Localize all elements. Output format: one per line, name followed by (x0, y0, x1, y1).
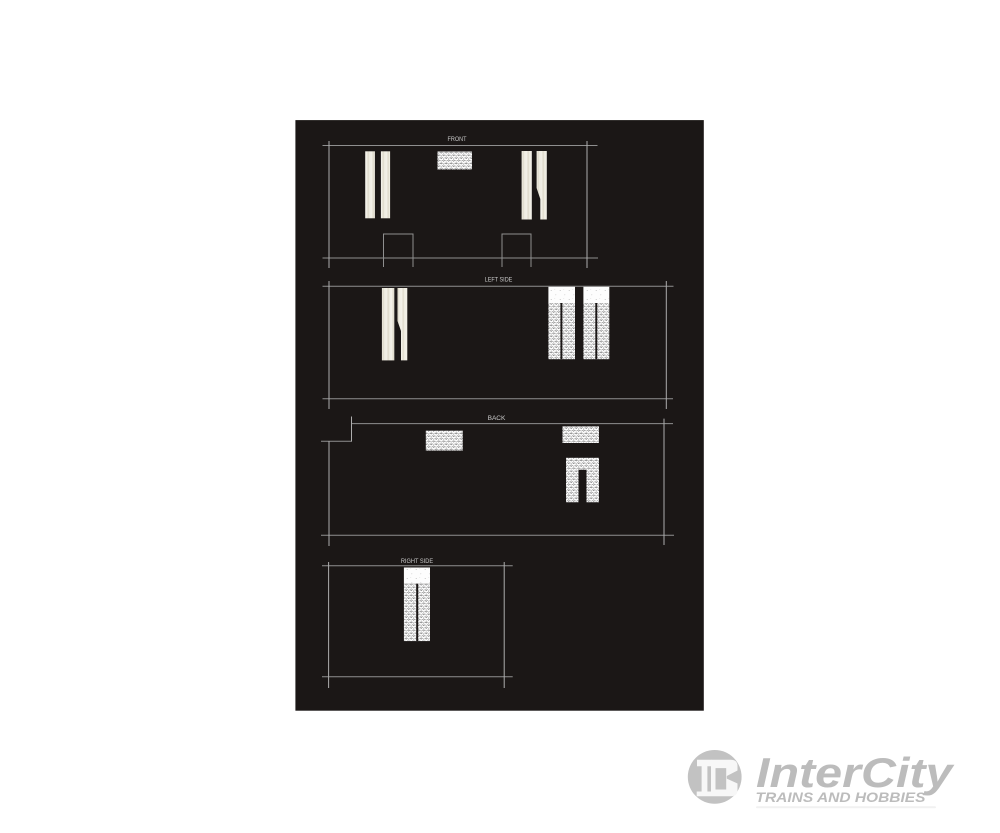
svg-text:LEFT SIDE: LEFT SIDE (485, 278, 513, 284)
svg-text:BACK: BACK (488, 416, 506, 422)
svg-text:FRONT: FRONT (448, 137, 467, 143)
svg-text:TRAINS AND HOBBIES: TRAINS AND HOBBIES (756, 789, 927, 805)
svg-text:RIGHT SIDE: RIGHT SIDE (401, 559, 433, 565)
